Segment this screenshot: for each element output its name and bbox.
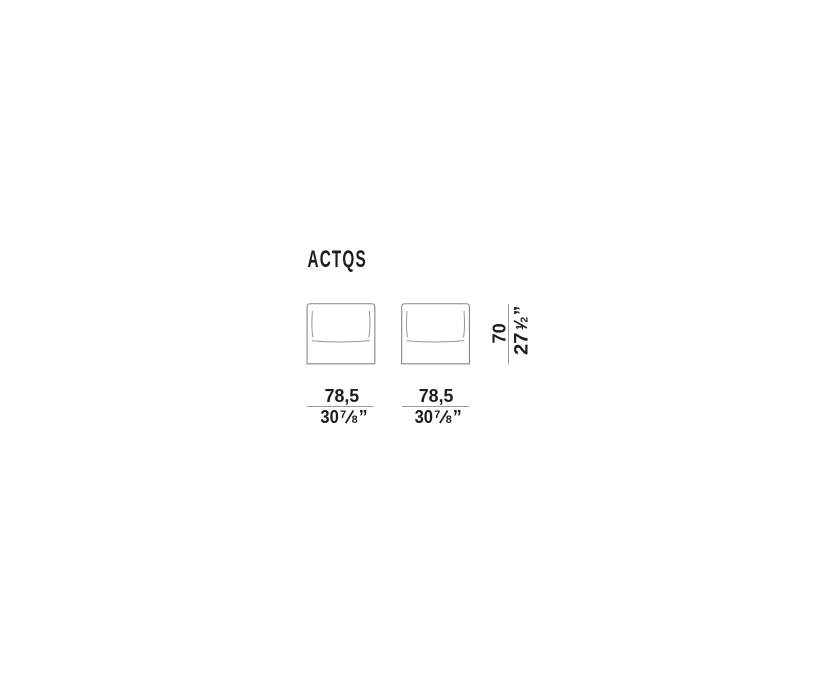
svg-text:78,5: 78,5 — [419, 386, 454, 406]
svg-text:30: 30 — [320, 407, 338, 427]
svg-text:7: 7 — [434, 409, 440, 421]
svg-text:”: ” — [359, 407, 368, 427]
svg-text:ACTQS: ACTQS — [308, 246, 367, 273]
svg-text:”: ” — [511, 306, 532, 316]
svg-text:8: 8 — [446, 414, 452, 426]
svg-text:7: 7 — [340, 409, 346, 421]
svg-text:8: 8 — [352, 414, 358, 426]
svg-text:27: 27 — [511, 333, 532, 356]
svg-text:78,5: 78,5 — [325, 386, 360, 406]
svg-text:70: 70 — [490, 323, 510, 343]
svg-text:2: 2 — [519, 317, 530, 323]
svg-text:”: ” — [453, 407, 462, 427]
svg-text:30: 30 — [415, 407, 433, 427]
